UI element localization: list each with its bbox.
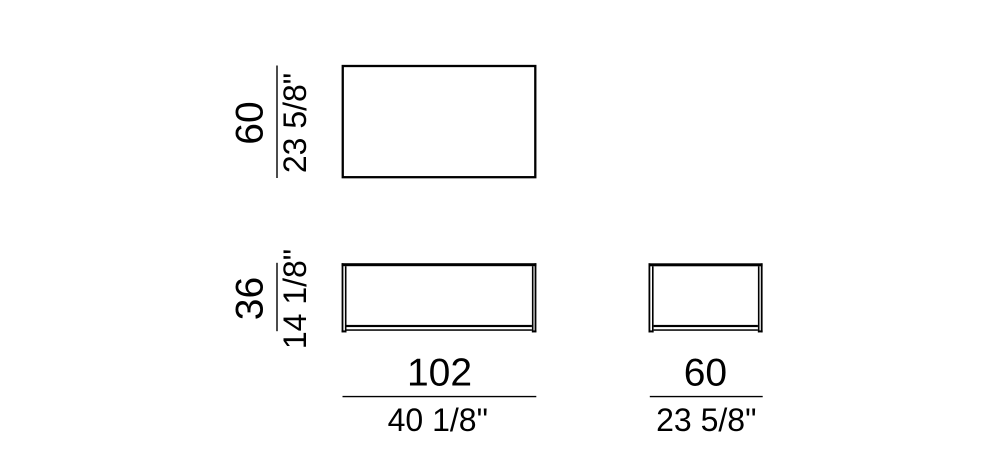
svg-text:23 5/8": 23 5/8" [277,73,313,173]
svg-text:40 1/8": 40 1/8" [388,402,488,438]
svg-text:14 1/8": 14 1/8" [277,249,313,349]
svg-text:60: 60 [684,352,727,395]
svg-text:60: 60 [229,101,272,144]
svg-text:102: 102 [407,352,472,395]
svg-text:36: 36 [229,277,272,320]
svg-text:23 5/8": 23 5/8" [656,402,756,438]
